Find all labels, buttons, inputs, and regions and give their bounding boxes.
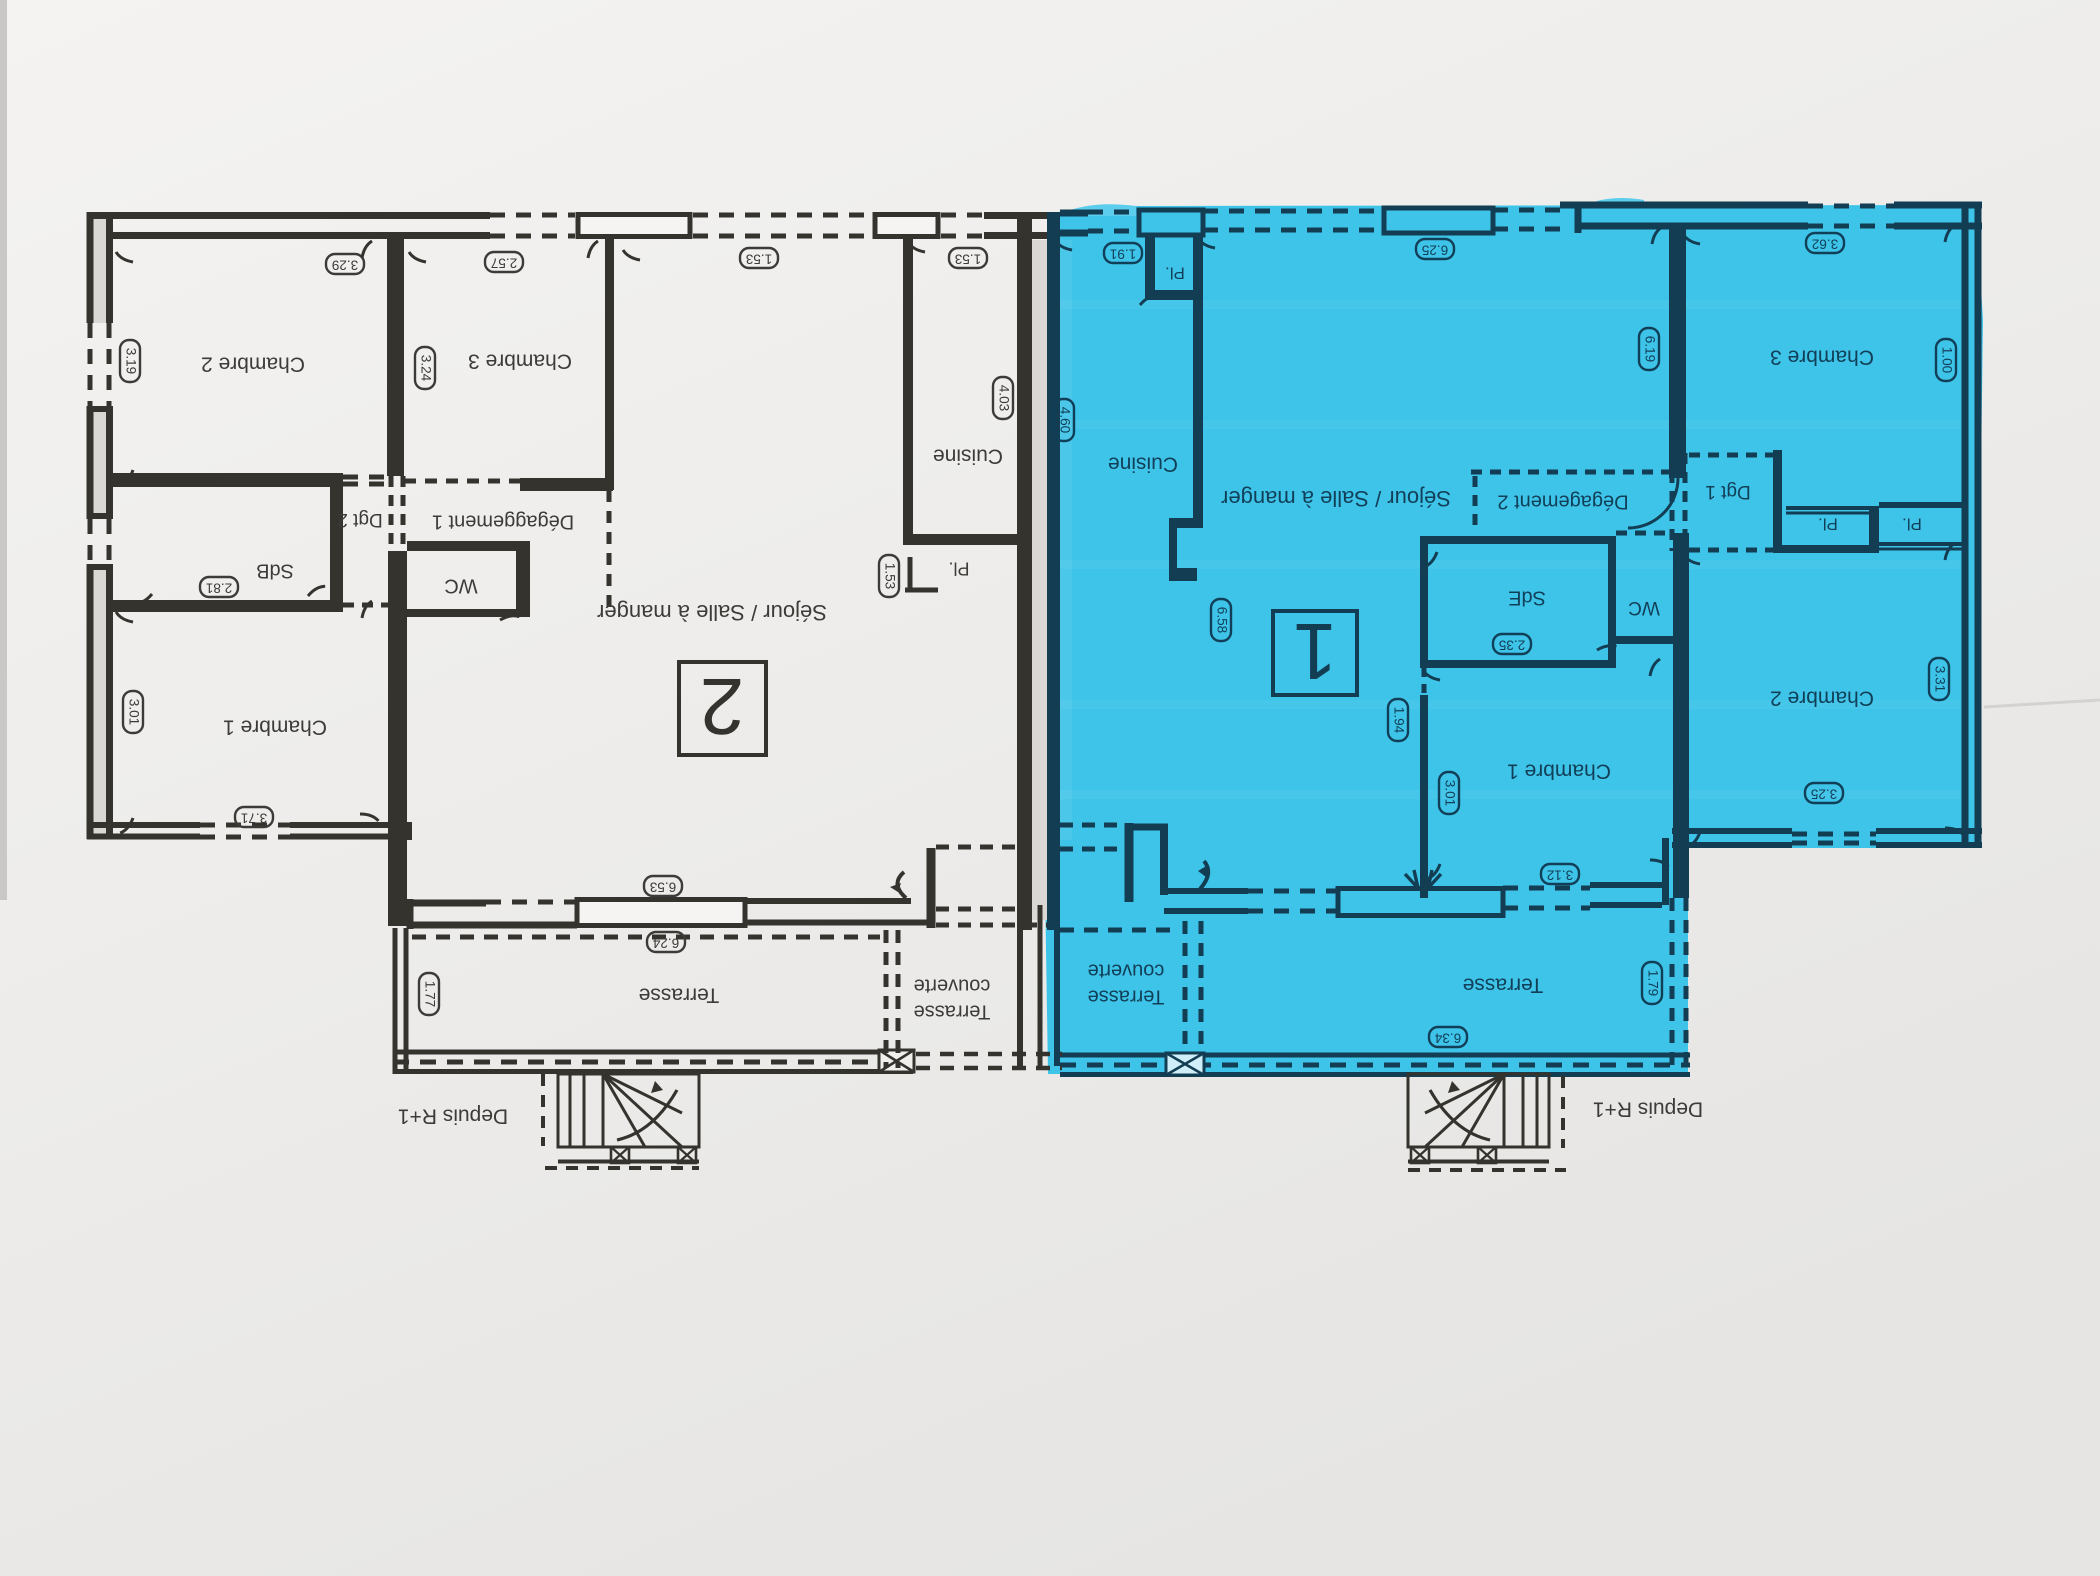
- svg-text:3.12: 3.12: [1547, 867, 1573, 882]
- svg-text:3.24: 3.24: [418, 355, 433, 382]
- svg-text:Chambre 2: Chambre 2: [201, 352, 305, 375]
- svg-text:Dgt 2: Dgt 2: [337, 509, 382, 530]
- svg-text:4.03: 4.03: [996, 385, 1011, 411]
- svg-text:3.71: 3.71: [241, 810, 267, 825]
- svg-text:Pl.: Pl.: [1902, 515, 1922, 534]
- svg-text:3.19: 3.19: [123, 348, 138, 374]
- svg-text:1.53: 1.53: [955, 251, 981, 266]
- svg-text:Chambre 3: Chambre 3: [1770, 345, 1874, 368]
- svg-text:1.94: 1.94: [1391, 707, 1406, 734]
- svg-text:3.29: 3.29: [332, 257, 358, 272]
- svg-text:3.62: 3.62: [1812, 236, 1838, 251]
- svg-text:6.25: 6.25: [1422, 242, 1448, 257]
- svg-text:SdE: SdE: [1508, 587, 1546, 609]
- svg-text:2.35: 2.35: [1499, 637, 1525, 652]
- svg-text:3.25: 3.25: [1811, 786, 1837, 801]
- svg-text:Dégagement 2: Dégagement 2: [1497, 491, 1628, 513]
- svg-text:6.24: 6.24: [652, 935, 679, 950]
- svg-text:1.53: 1.53: [882, 563, 897, 589]
- svg-text:Chambre 3: Chambre 3: [468, 349, 572, 372]
- svg-text:Cuisine: Cuisine: [1108, 452, 1178, 475]
- svg-text:6.53: 6.53: [650, 879, 676, 894]
- svg-text:1.91: 1.91: [1110, 246, 1136, 261]
- svg-text:1: 1: [1293, 607, 1338, 696]
- svg-text:couverte: couverte: [914, 975, 991, 997]
- svg-text:1.00: 1.00: [1939, 347, 1954, 374]
- svg-text:WC: WC: [444, 575, 477, 597]
- svg-text:couverte: couverte: [1088, 960, 1165, 982]
- svg-text:Cuisine: Cuisine: [933, 444, 1003, 467]
- svg-text:1.77: 1.77: [422, 981, 437, 1007]
- svg-text:Terrasse: Terrasse: [1463, 973, 1544, 996]
- svg-text:Terrasse: Terrasse: [639, 983, 720, 1006]
- svg-text:Pl.: Pl.: [1165, 264, 1185, 283]
- svg-text:Dégaggement 1: Dégaggement 1: [432, 511, 574, 533]
- svg-text:Terrasse: Terrasse: [1088, 986, 1165, 1008]
- svg-text:6.34: 6.34: [1434, 1030, 1461, 1045]
- svg-text:Chambre 1: Chambre 1: [223, 715, 327, 738]
- svg-text:4.60: 4.60: [1057, 407, 1072, 434]
- svg-text:1.53: 1.53: [746, 251, 772, 266]
- svg-text:Terrasse: Terrasse: [914, 1001, 991, 1023]
- svg-text:Pl.: Pl.: [948, 558, 969, 578]
- svg-text:Séjour / Salle à manger: Séjour / Salle à manger: [597, 600, 827, 625]
- svg-text:2: 2: [700, 662, 745, 751]
- svg-text:6.58: 6.58: [1214, 607, 1229, 633]
- svg-text:3.01: 3.01: [1442, 780, 1457, 806]
- svg-text:SdB: SdB: [256, 560, 294, 582]
- svg-text:Depuis R+1: Depuis R+1: [398, 1104, 508, 1127]
- svg-text:Séjour / Salle à manger: Séjour / Salle à manger: [1221, 486, 1451, 511]
- svg-text:Chambre 2: Chambre 2: [1770, 686, 1874, 709]
- svg-text:1.79: 1.79: [1645, 970, 1660, 996]
- svg-text:Depuis R+1: Depuis R+1: [1593, 1097, 1703, 1120]
- svg-text:3.31: 3.31: [1932, 666, 1947, 692]
- svg-text:2.81: 2.81: [206, 580, 232, 595]
- svg-text:Pl.: Pl.: [1818, 515, 1838, 534]
- svg-text:Chambre 1: Chambre 1: [1507, 759, 1611, 782]
- svg-text:6.19: 6.19: [1642, 336, 1657, 362]
- svg-text:WC: WC: [1628, 597, 1660, 618]
- svg-text:2.57: 2.57: [491, 255, 517, 270]
- svg-text:3.01: 3.01: [126, 699, 141, 725]
- svg-text:Dgt 1: Dgt 1: [1705, 481, 1750, 502]
